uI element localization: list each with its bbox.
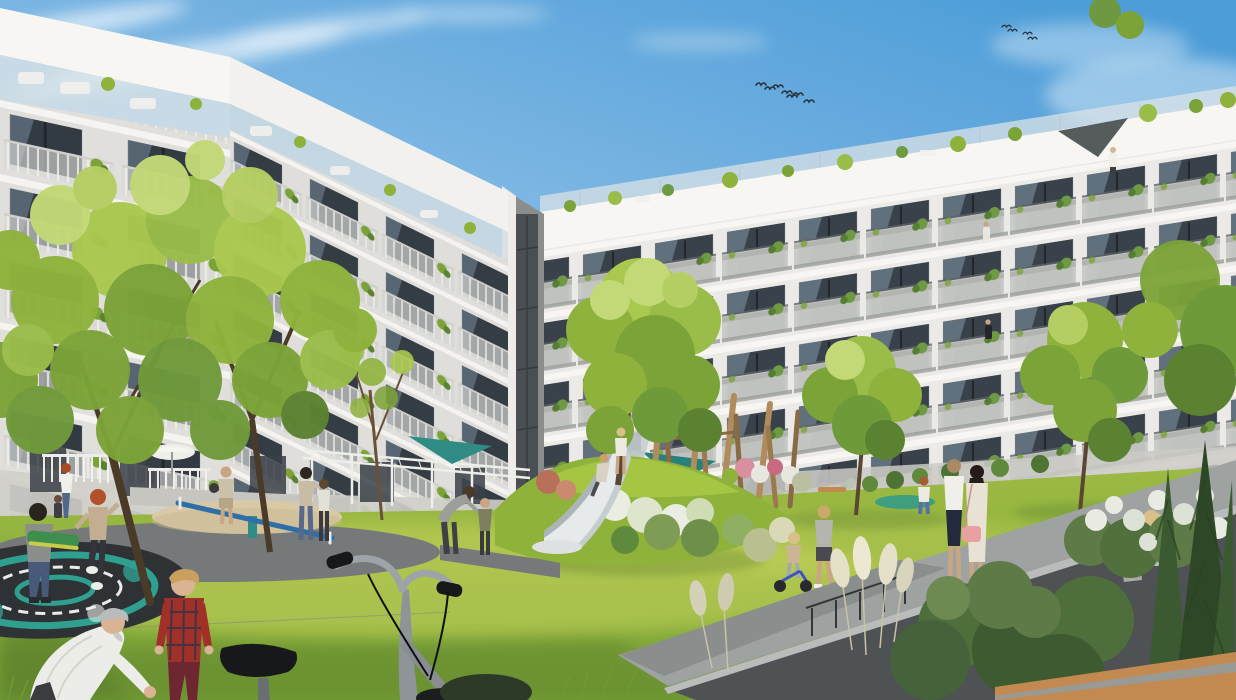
courtyard-rendering [0,0,1236,700]
wood-bench [818,487,846,492]
scene-canvas [0,0,1236,700]
roof-person [1109,147,1117,174]
building-junction [502,186,544,515]
